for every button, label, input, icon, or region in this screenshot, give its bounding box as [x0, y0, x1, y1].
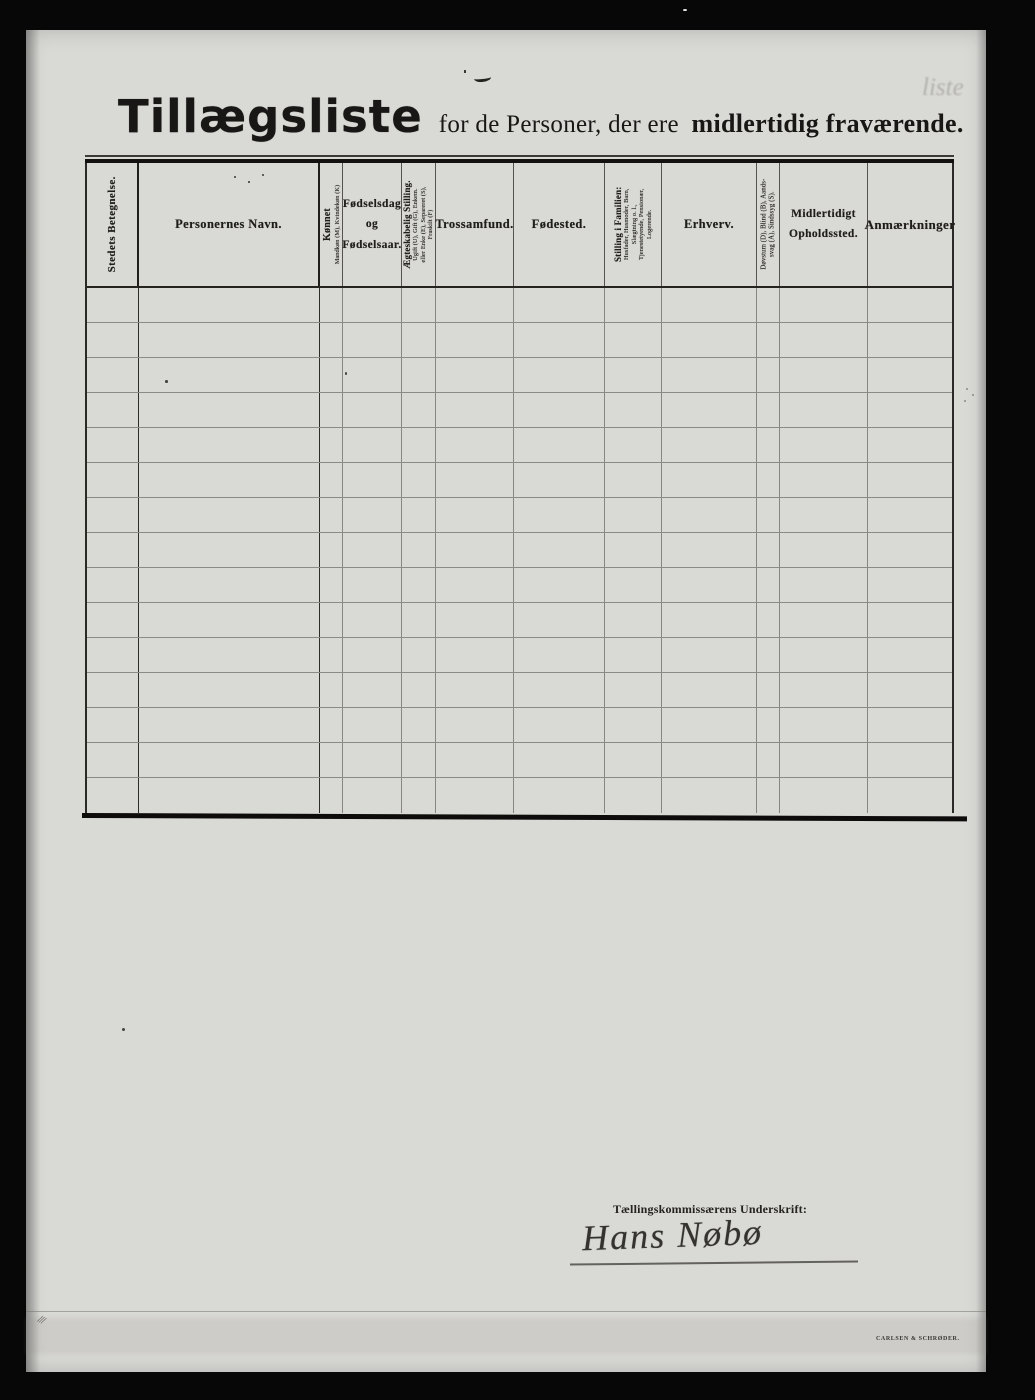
table-cell [605, 638, 662, 672]
title-subtitle-regular: for de Personer, der ere [439, 111, 679, 138]
table-cell [139, 498, 320, 532]
table-row [87, 603, 952, 638]
table-row [87, 323, 952, 358]
table-cell [780, 778, 868, 813]
table-cell [436, 708, 514, 742]
table-cell [402, 288, 436, 322]
table-cell [436, 323, 514, 357]
table-cell [139, 463, 320, 497]
table-cell [402, 463, 436, 497]
table-cell [868, 428, 952, 462]
table-cell [436, 638, 514, 672]
table-cell [402, 673, 436, 707]
table-cell [757, 358, 780, 392]
table-cell [402, 743, 436, 777]
table-row [87, 568, 952, 603]
ink-speck [464, 70, 466, 73]
table-cell [757, 673, 780, 707]
table-row [87, 708, 952, 743]
table-cell [868, 743, 952, 777]
table-cell [780, 743, 868, 777]
table-cell [87, 393, 139, 427]
col-header-trossamfund: Trossamfund. [436, 163, 514, 286]
col-label-line: Fødselsdag [342, 194, 401, 214]
table-cell [868, 393, 952, 427]
table-cell [514, 358, 605, 392]
table-cell [662, 673, 757, 707]
table-cell [87, 288, 139, 322]
dust-speck [248, 181, 250, 183]
table-row [87, 533, 952, 568]
table-cell [868, 358, 952, 392]
table-cell [402, 428, 436, 462]
table-cell [514, 428, 605, 462]
table-cell [436, 498, 514, 532]
table-cell [605, 743, 662, 777]
table-row [87, 778, 952, 813]
col-label: Stedets Betegnelse. [106, 164, 119, 285]
table-cell [605, 288, 662, 322]
table-cell [343, 638, 402, 672]
dust-speck [972, 394, 974, 396]
table-cell [87, 743, 139, 777]
table-cell [139, 638, 320, 672]
col-label: Stilling i Familien: [613, 164, 623, 285]
dust-speck [964, 400, 966, 402]
table-cell [662, 463, 757, 497]
col-label: Erhverv. [684, 217, 734, 232]
table-cell [320, 673, 343, 707]
table-cell [780, 673, 868, 707]
table-cell [662, 288, 757, 322]
table-cell [402, 358, 436, 392]
table-cell [87, 638, 139, 672]
signature-line [570, 1260, 858, 1265]
table-cell [436, 568, 514, 602]
title-subtitle-bold: midlertidig fraværende. [691, 109, 963, 138]
col-header-stilling-i-familien: Stilling i Familien: Husfader, Husmoder,… [605, 163, 662, 286]
printer-imprint: CARLSEN & SCHRØDER. [876, 1336, 960, 1342]
table-cell [514, 743, 605, 777]
col-label: Personernes Navn. [175, 217, 282, 232]
table-cell [320, 498, 343, 532]
table-cell [343, 568, 402, 602]
table-cell [757, 393, 780, 427]
table-cell [320, 778, 343, 813]
table-cell [87, 708, 139, 742]
table-cell [757, 533, 780, 567]
table-cell [757, 568, 780, 602]
table-cell [436, 673, 514, 707]
table-cell [514, 393, 605, 427]
table-cell [402, 568, 436, 602]
table-cell [605, 778, 662, 813]
table-cell [139, 743, 320, 777]
col-header-anmaerkninger: Anmærkninger [868, 163, 952, 286]
table-cell [757, 708, 780, 742]
table-cell [87, 778, 139, 813]
table-cell [402, 638, 436, 672]
table-cell [320, 638, 343, 672]
table-cell [320, 428, 343, 462]
table-cell [868, 638, 952, 672]
vertical-text-wrap: Ægteskabelig Stilling. Ugift (U), Gift (… [402, 163, 435, 286]
table-cell [662, 358, 757, 392]
table-cell [868, 673, 952, 707]
table-cell [139, 778, 320, 813]
table-cell [605, 568, 662, 602]
ink-squiggle-mark [474, 73, 492, 83]
table-cell [662, 638, 757, 672]
title-subtitle: for de Personer, der ere midlertidig fra… [439, 109, 964, 139]
table-cell [605, 603, 662, 637]
table-cell [514, 323, 605, 357]
table-cell [320, 463, 343, 497]
table-cell [780, 323, 868, 357]
page-title: Tillægsliste for de Personer, der ere mi… [118, 90, 964, 143]
table-cell [436, 603, 514, 637]
table-cell [780, 393, 868, 427]
table-cell [320, 358, 343, 392]
table-cell [87, 533, 139, 567]
table-cell [780, 428, 868, 462]
table-row [87, 428, 952, 463]
table-cell [436, 778, 514, 813]
table-cell [436, 533, 514, 567]
dust-speck [966, 388, 968, 390]
table-cell [402, 533, 436, 567]
table-row [87, 288, 952, 323]
col-sublabel: Tjenestetyende, Pensionær, [638, 164, 646, 285]
vertical-text-wrap: Kønnet Mandkøn (M), Kvindekøn (K) [320, 163, 342, 286]
table-cell [436, 358, 514, 392]
table-cell [343, 393, 402, 427]
table-cell [662, 603, 757, 637]
vertical-text-wrap: Stilling i Familien: Husfader, Husmoder,… [605, 163, 661, 286]
table-cell [868, 288, 952, 322]
col-sublabel: Fraskilt (F) [427, 164, 435, 285]
table-cell [780, 638, 868, 672]
table-cell [87, 568, 139, 602]
table-cell [402, 708, 436, 742]
table-cell [780, 498, 868, 532]
title-main: Tillægsliste [118, 90, 423, 143]
col-label-line: Midlertidigt [789, 205, 858, 225]
scan-dust-speck [683, 9, 687, 11]
table-cell [780, 288, 868, 322]
table-cell [514, 463, 605, 497]
table-header-row: Stedets Betegnelse. Personernes Navn. Kø… [87, 163, 952, 288]
table-row [87, 358, 952, 393]
table-cell [402, 393, 436, 427]
table-cell [436, 428, 514, 462]
table-cell [780, 603, 868, 637]
table-cell [605, 358, 662, 392]
table-cell [320, 603, 343, 637]
dust-speck [234, 176, 236, 178]
signature-handwriting: Hans Nøbø [581, 1207, 882, 1259]
ink-speck [165, 380, 168, 383]
table-cell [436, 393, 514, 427]
table-cell [139, 533, 320, 567]
table-cell [868, 568, 952, 602]
table-cell [343, 603, 402, 637]
scanned-page-background: liste Tillægsliste for de Personer, der … [0, 0, 1035, 1400]
census-table: Stedets Betegnelse. Personernes Navn. Kø… [85, 155, 954, 818]
table-cell [343, 743, 402, 777]
col-header-dovstum-blind: Døvstum (D), Blind (B), Aands- svag (A),… [757, 163, 780, 286]
table-cell [320, 568, 343, 602]
census-form-page: liste Tillægsliste for de Personer, der … [26, 30, 986, 1372]
table-cell [780, 533, 868, 567]
table-cell [757, 428, 780, 462]
col-label-line: og [342, 214, 401, 234]
table-cell [320, 288, 343, 322]
table-cell [605, 498, 662, 532]
col-header-erhverv: Erhverv. [662, 163, 757, 286]
table-cell [868, 603, 952, 637]
table-cell [662, 743, 757, 777]
table-cell [780, 708, 868, 742]
table-cell [87, 603, 139, 637]
table-cell [605, 673, 662, 707]
table-cell [757, 778, 780, 813]
table-cell [757, 498, 780, 532]
table-cell [780, 358, 868, 392]
dust-speck [262, 174, 264, 176]
table-cell [343, 673, 402, 707]
table-cell [402, 778, 436, 813]
col-header-fodselsdag: Fødselsdag og Fødselsaar. [343, 163, 402, 286]
table-cell [514, 708, 605, 742]
table-cell [868, 778, 952, 813]
table-row [87, 393, 952, 428]
table-cell [343, 463, 402, 497]
table-cell [757, 743, 780, 777]
ink-speck [122, 1028, 125, 1031]
table-row [87, 498, 952, 533]
table-cell [320, 743, 343, 777]
table-cell [605, 393, 662, 427]
table-cell [514, 673, 605, 707]
col-label-line: Fødselsaar. [342, 235, 401, 255]
table-cell [757, 603, 780, 637]
table-cell [320, 393, 343, 427]
table-cell [514, 778, 605, 813]
col-label: Kønnet [321, 164, 333, 285]
col-header-fodested: Fødested. [514, 163, 605, 286]
paper-crease [26, 1311, 986, 1312]
table-row [87, 743, 952, 778]
col-label-line: Døvstum (D), Blind (B), Aands- [760, 164, 768, 285]
table-cell [139, 393, 320, 427]
table-cell [402, 603, 436, 637]
table-cell [514, 603, 605, 637]
table-top-rule-thin [85, 155, 954, 157]
table-cell [343, 358, 402, 392]
table-cell [139, 708, 320, 742]
table-cell [343, 428, 402, 462]
table-cell [757, 463, 780, 497]
table-cell [139, 428, 320, 462]
table-cell [343, 498, 402, 532]
table-cell [514, 533, 605, 567]
table-cell [868, 498, 952, 532]
table-cell [343, 288, 402, 322]
table-row [87, 463, 952, 498]
table-cell [662, 778, 757, 813]
col-sublabel: Mandkøn (M), Kvindekøn (K) [333, 164, 341, 285]
table-cell [757, 638, 780, 672]
table-cell [402, 498, 436, 532]
table-cell [868, 533, 952, 567]
col-header-stedets-betegnelse: Stedets Betegnelse. [87, 163, 139, 286]
table-cell [757, 323, 780, 357]
table-cell [605, 533, 662, 567]
table-cell [139, 323, 320, 357]
table-grid: Stedets Betegnelse. Personernes Navn. Kø… [85, 163, 954, 813]
table-cell [780, 463, 868, 497]
col-sublabel: Slægtning o. l., [631, 164, 639, 285]
col-sublabel: Logerende. [646, 164, 654, 285]
table-cell [662, 533, 757, 567]
table-body [87, 288, 952, 813]
table-cell [868, 323, 952, 357]
table-cell [87, 358, 139, 392]
col-sublabel: Husfader, Husmoder, Barn, [623, 164, 631, 285]
table-cell [662, 708, 757, 742]
table-cell [87, 498, 139, 532]
vertical-text-wrap: Stedets Betegnelse. [87, 163, 137, 286]
table-cell [514, 498, 605, 532]
table-cell [87, 463, 139, 497]
table-cell [780, 568, 868, 602]
table-cell [662, 393, 757, 427]
table-cell [87, 673, 139, 707]
paper-mottling [26, 1318, 986, 1354]
table-cell [139, 673, 320, 707]
table-cell [139, 568, 320, 602]
col-header-konnet: Kønnet Mandkøn (M), Kvindekøn (K) [320, 163, 343, 286]
ink-speck [345, 372, 347, 375]
table-cell [343, 533, 402, 567]
table-cell [605, 428, 662, 462]
col-sublabel: Ugift (U), Gift (G), Enkem. [412, 164, 420, 285]
table-cell [87, 323, 139, 357]
table-cell [514, 568, 605, 602]
table-cell [605, 463, 662, 497]
table-cell [343, 778, 402, 813]
table-cell [662, 323, 757, 357]
table-cell [662, 498, 757, 532]
table-cell [514, 638, 605, 672]
table-cell [868, 708, 952, 742]
col-label-line: svag (A), Sindssyg (S). [768, 164, 776, 285]
table-cell [757, 288, 780, 322]
table-cell [343, 323, 402, 357]
table-bottom-rule [82, 813, 967, 821]
table-cell [139, 358, 320, 392]
table-cell [436, 463, 514, 497]
table-row [87, 638, 952, 673]
vertical-text-wrap: Døvstum (D), Blind (B), Aands- svag (A),… [757, 163, 779, 286]
col-header-midlertidigt-opholdssted: Midlertidigt Opholdssted. [780, 163, 868, 286]
table-cell [662, 428, 757, 462]
table-cell [436, 743, 514, 777]
table-cell [605, 708, 662, 742]
table-cell [320, 533, 343, 567]
table-cell [868, 463, 952, 497]
table-cell [139, 288, 320, 322]
table-cell [87, 428, 139, 462]
col-label: Anmærkninger [865, 217, 956, 233]
col-label: Trossamfund. [435, 217, 513, 232]
table-cell [436, 288, 514, 322]
table-cell [605, 323, 662, 357]
col-label: Fødested. [532, 217, 587, 232]
table-cell [662, 568, 757, 602]
col-header-personernes-navn: Personernes Navn. [139, 163, 320, 286]
paper-edge-shadow-right [976, 30, 986, 1372]
table-cell [320, 323, 343, 357]
col-label: Fødselsdag og Fødselsaar. [342, 194, 401, 254]
col-label-line: Opholdssted. [789, 225, 858, 245]
table-cell [514, 288, 605, 322]
table-cell [402, 323, 436, 357]
paper-edge-shadow-left [26, 30, 40, 1372]
table-row [87, 673, 952, 708]
table-cell [320, 708, 343, 742]
col-header-aegteskabelig-stilling: Ægteskabelig Stilling. Ugift (U), Gift (… [402, 163, 436, 286]
col-label: Midlertidigt Opholdssted. [789, 205, 858, 244]
col-label: Ægteskabelig Stilling. [402, 164, 412, 285]
table-cell [139, 603, 320, 637]
table-cell [343, 708, 402, 742]
